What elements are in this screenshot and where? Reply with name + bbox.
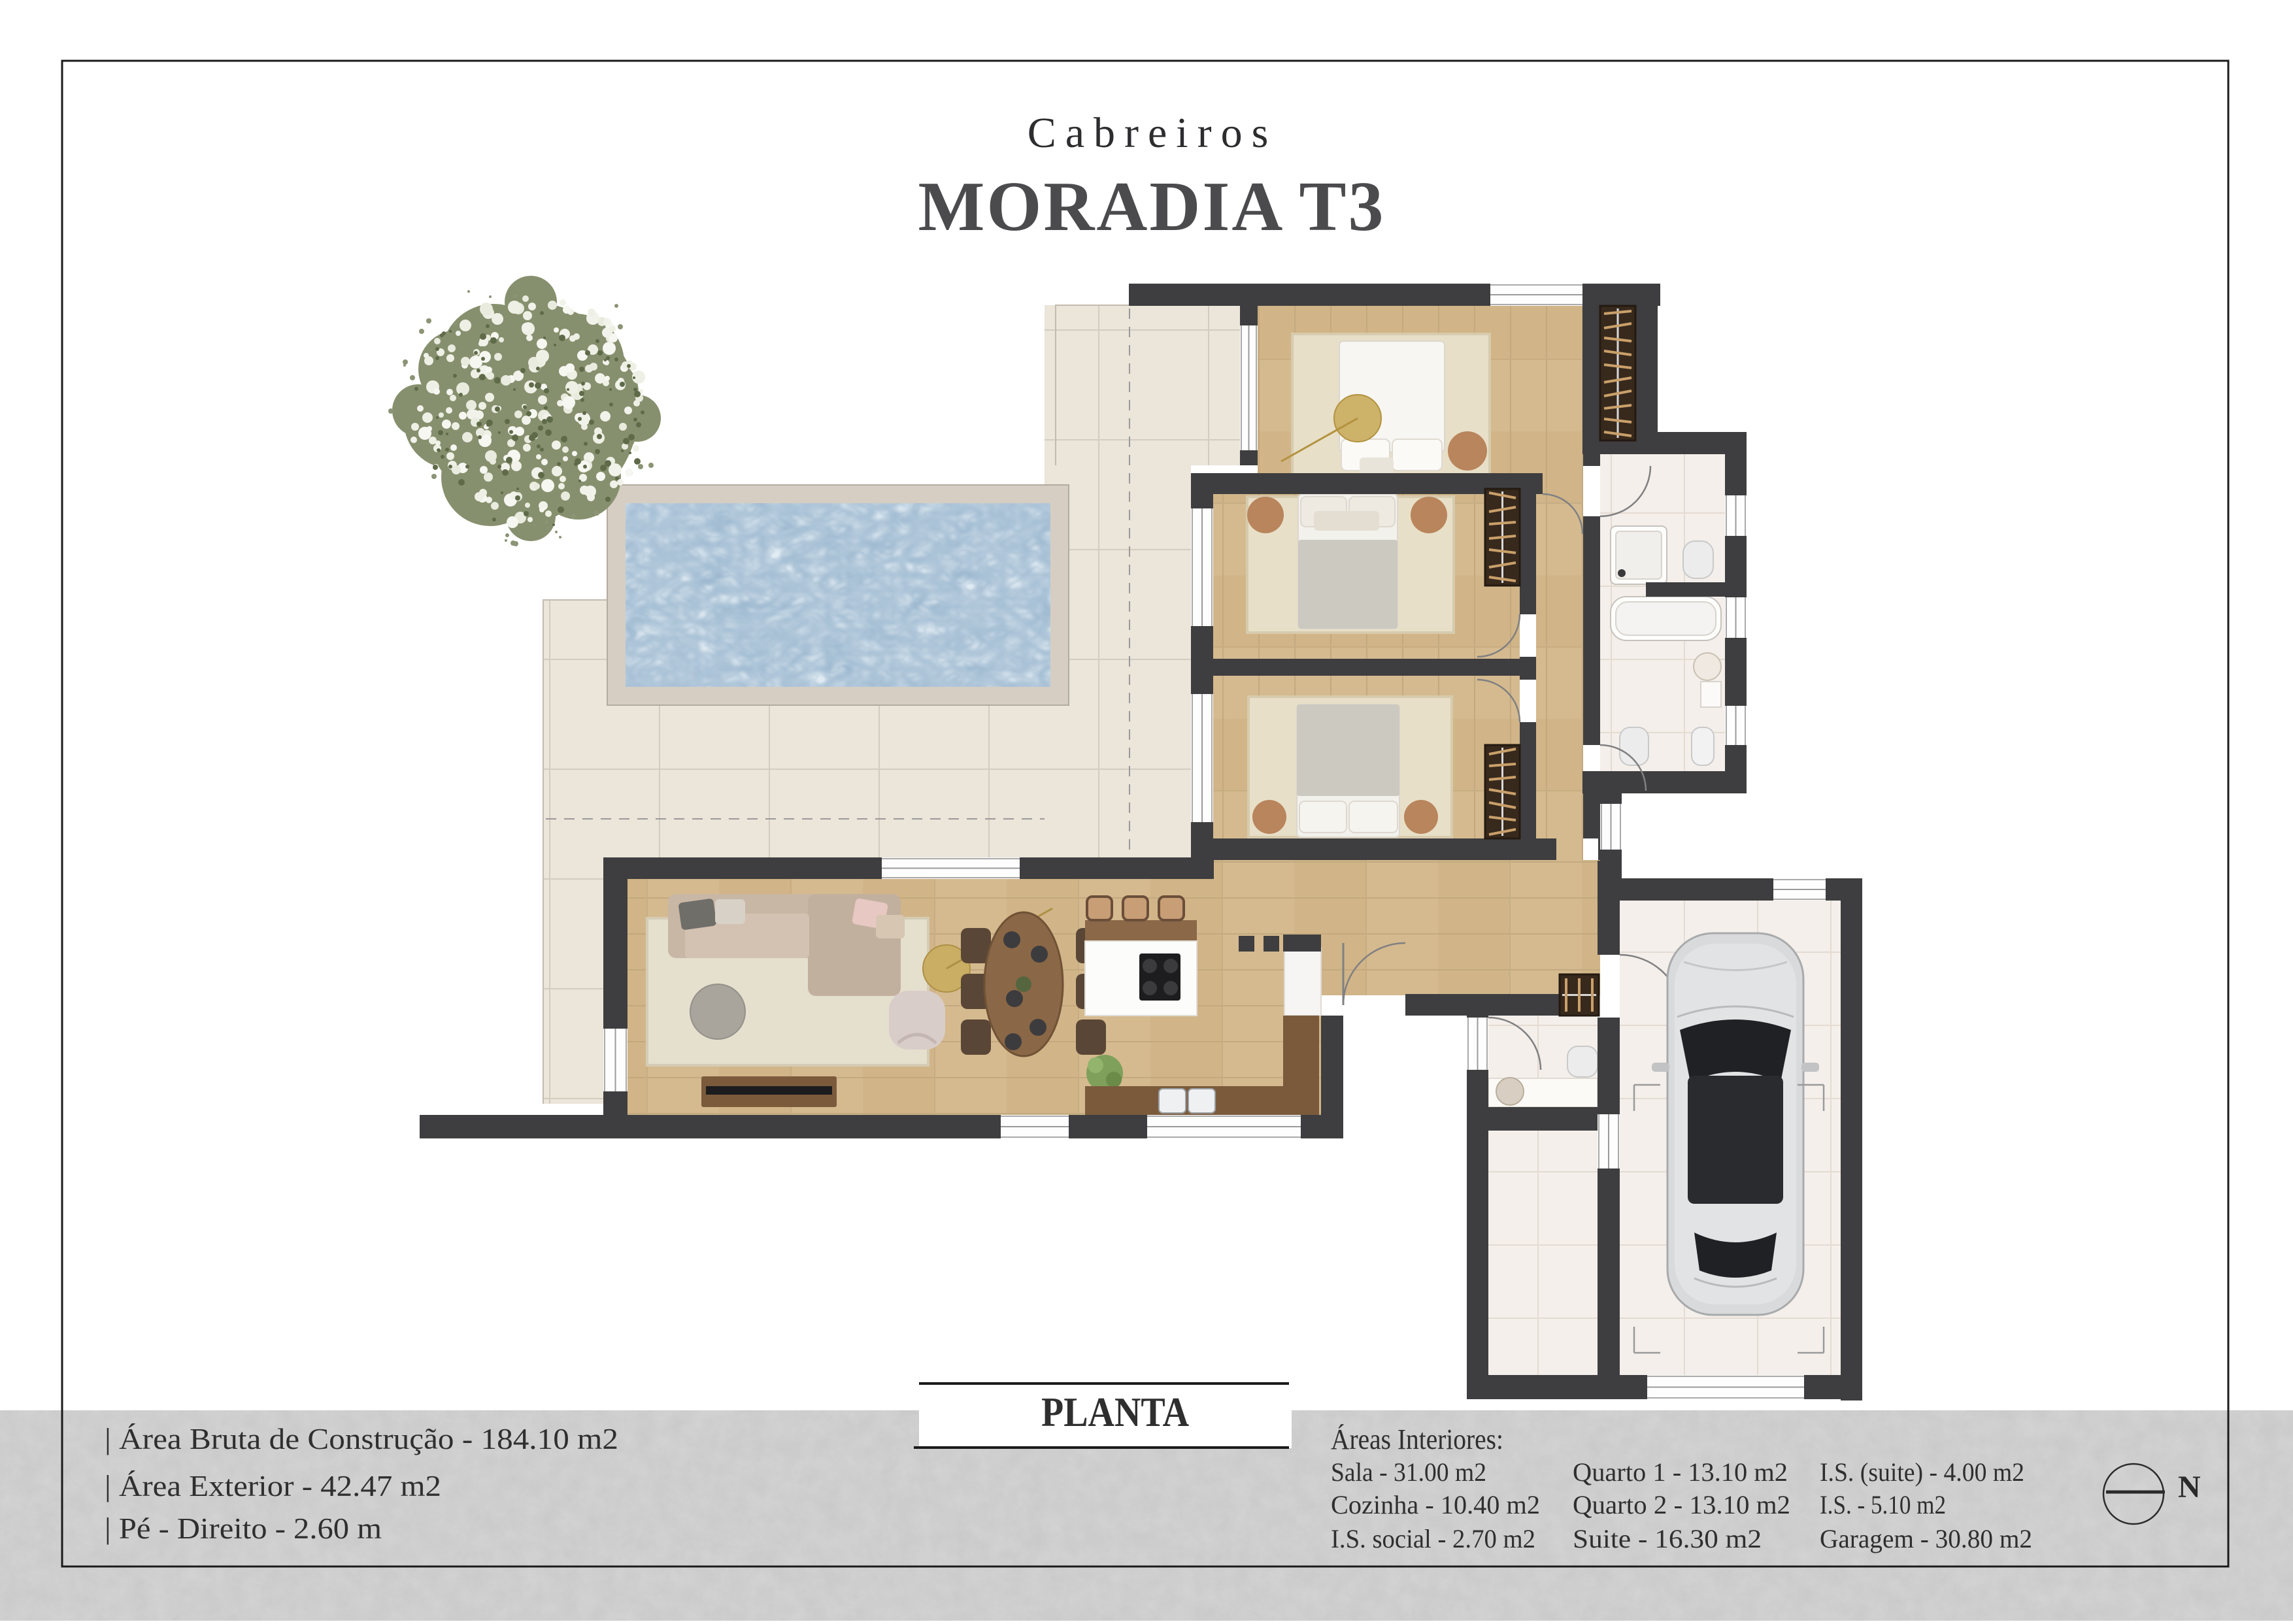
svg-text:I.S. - 5.10 m2: I.S. - 5.10 m2 — [1820, 1490, 1946, 1519]
svg-text:Garagem - 30.80 m2: Garagem - 30.80 m2 — [1820, 1524, 2032, 1553]
svg-text:I.S. (suite) - 4.00 m2: I.S. (suite) - 4.00 m2 — [1820, 1457, 2024, 1487]
svg-text:N: N — [2178, 1470, 2201, 1504]
svg-text:I.S. social - 2.70 m2: I.S. social - 2.70 m2 — [1331, 1524, 1535, 1553]
svg-text:| Área Exterior - 42.47 m2: | Área Exterior - 42.47 m2 — [105, 1470, 441, 1502]
svg-text:Quarto 2 - 13.10 m2: Quarto 2 - 13.10 m2 — [1573, 1490, 1790, 1519]
svg-text:| Pé - Direito - 2.60 m: | Pé - Direito - 2.60 m — [105, 1512, 382, 1545]
svg-text:Cabreiros: Cabreiros — [1028, 109, 1278, 157]
svg-text:MORADIA T3: MORADIA T3 — [918, 168, 1385, 246]
svg-text:Quarto 1 - 13.10 m2: Quarto 1 - 13.10 m2 — [1573, 1457, 1788, 1487]
svg-text:Áreas Interiores:: Áreas Interiores: — [1331, 1423, 1503, 1455]
svg-text:Cozinha - 10.40 m2: Cozinha - 10.40 m2 — [1331, 1490, 1540, 1519]
svg-text:PLANTA: PLANTA — [1041, 1389, 1189, 1435]
svg-text:Suite - 16.30 m2: Suite - 16.30 m2 — [1573, 1524, 1762, 1553]
svg-text:| Área Bruta de Construção - 1: | Área Bruta de Construção - 184.10 m2 — [105, 1423, 618, 1455]
svg-text:Sala - 31.00 m2: Sala - 31.00 m2 — [1331, 1457, 1486, 1487]
